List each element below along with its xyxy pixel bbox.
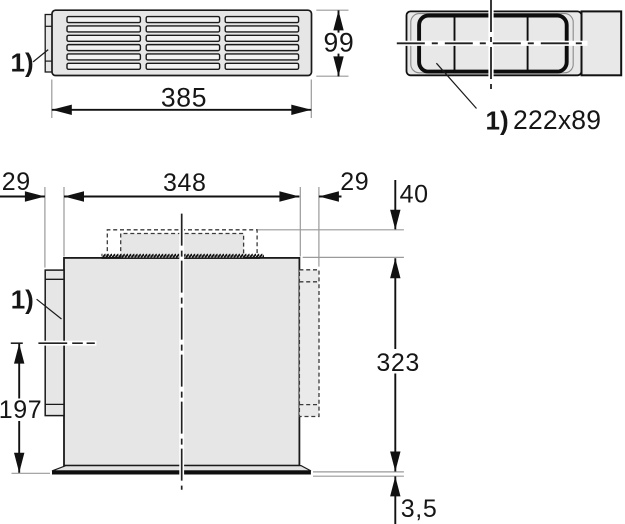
svg-text:29: 29: [2, 168, 31, 196]
svg-text:385: 385: [161, 83, 207, 113]
svg-text:1): 1): [11, 48, 34, 78]
svg-text:222x89: 222x89: [513, 105, 601, 135]
svg-text:348: 348: [163, 169, 207, 197]
svg-text:197: 197: [0, 396, 42, 424]
svg-text:40: 40: [400, 181, 429, 209]
svg-text:3,5: 3,5: [401, 495, 438, 523]
svg-text:323: 323: [376, 349, 420, 377]
svg-text:29: 29: [340, 168, 369, 196]
svg-text:1): 1): [11, 285, 34, 315]
svg-text:1): 1): [486, 105, 509, 135]
svg-text:99: 99: [324, 28, 355, 58]
